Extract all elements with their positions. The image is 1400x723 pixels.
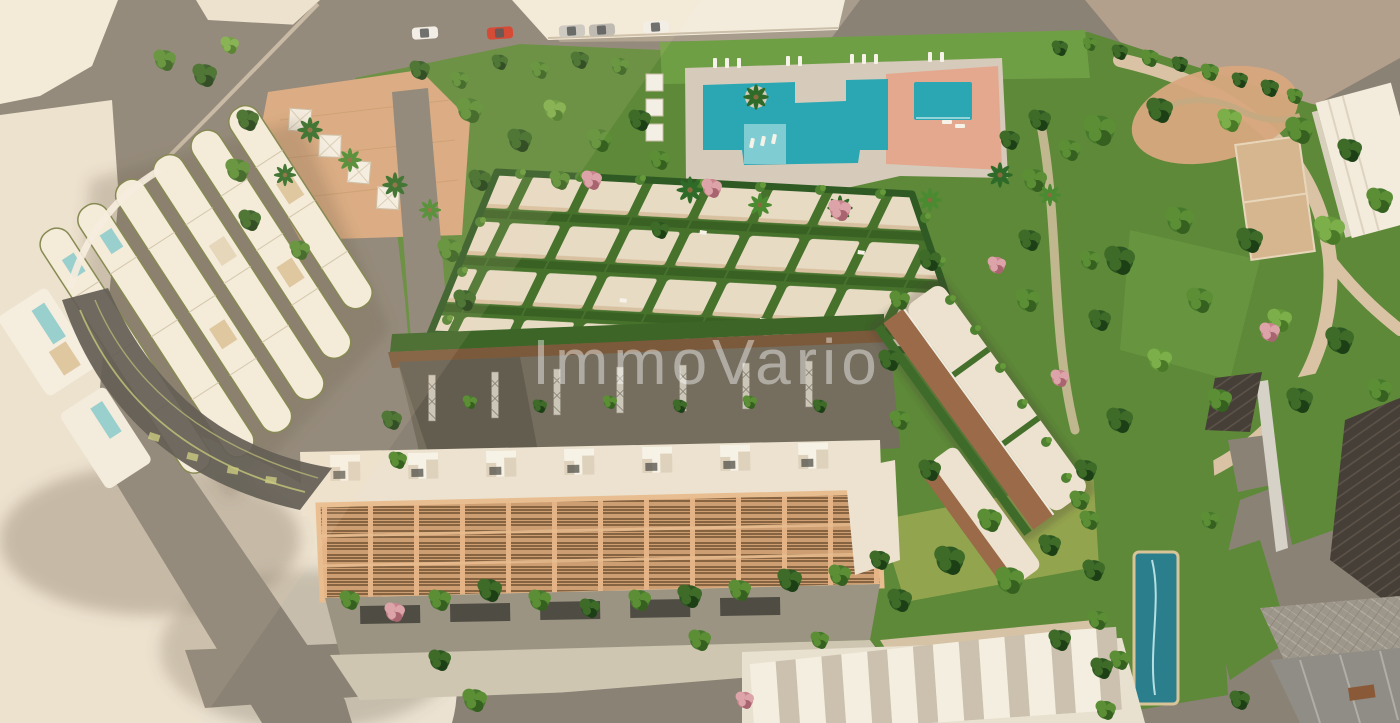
site-plan-render: ImmoVario	[0, 0, 1400, 723]
pool-area	[646, 52, 1008, 190]
aerial-render-viewport: ImmoVario	[0, 0, 1400, 723]
cabanas	[646, 74, 663, 141]
lap-pool	[1134, 552, 1178, 704]
kids-pool	[914, 82, 972, 120]
watermark: ImmoVario	[532, 326, 882, 398]
palm-icon	[743, 84, 769, 110]
